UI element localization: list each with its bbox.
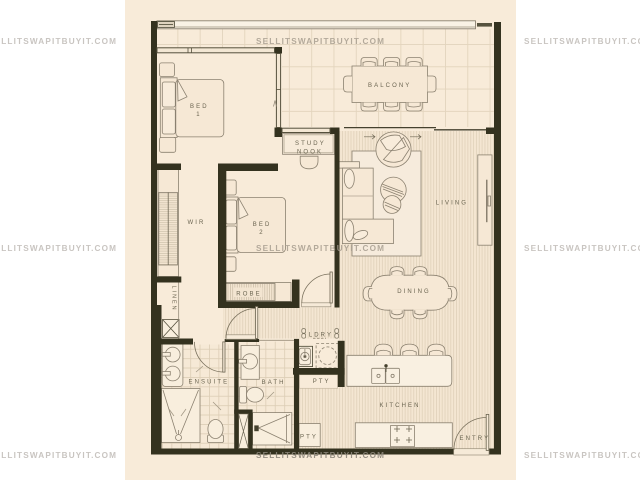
svg-text:SELLITSWAPITBUYIT.COM: SELLITSWAPITBUYIT.COM <box>524 37 640 46</box>
svg-text:BALCONY: BALCONY <box>368 83 411 89</box>
svg-text:BED: BED <box>190 104 209 110</box>
svg-text:PTY: PTY <box>300 434 318 440</box>
svg-text:LDRY: LDRY <box>309 333 333 339</box>
svg-text:ENSUITE: ENSUITE <box>189 380 230 386</box>
svg-text:SELLITSWAPITBUYIT.COM: SELLITSWAPITBUYIT.COM <box>256 451 384 460</box>
svg-text:SELLITSWAPITBUYIT.COM: SELLITSWAPITBUYIT.COM <box>0 37 116 46</box>
svg-text:SELLITSWAPITBUYIT.COM: SELLITSWAPITBUYIT.COM <box>524 451 640 460</box>
svg-text:WIR: WIR <box>188 220 206 226</box>
svg-text:SELLITSWAPITBUYIT.COM: SELLITSWAPITBUYIT.COM <box>256 37 384 46</box>
svg-text:KITCHEN: KITCHEN <box>380 403 421 409</box>
svg-text:PTY: PTY <box>313 379 331 385</box>
svg-text:DINING: DINING <box>397 289 431 295</box>
svg-text:NOOK: NOOK <box>297 149 323 155</box>
svg-text:1: 1 <box>196 112 201 118</box>
svg-text:BED: BED <box>253 222 272 228</box>
svg-text:SELLITSWAPITBUYIT.COM: SELLITSWAPITBUYIT.COM <box>256 244 384 253</box>
svg-text:STUDY: STUDY <box>295 141 326 147</box>
svg-text:LIVING: LIVING <box>436 200 468 206</box>
svg-text:LINEN: LINEN <box>171 286 177 312</box>
svg-text:SELLITSWAPITBUYIT.COM: SELLITSWAPITBUYIT.COM <box>0 451 116 460</box>
svg-text:BATH: BATH <box>262 380 286 386</box>
svg-text:ROBE: ROBE <box>236 292 261 298</box>
svg-text:SELLITSWAPITBUYIT.COM: SELLITSWAPITBUYIT.COM <box>524 244 640 253</box>
svg-text:ENTRY: ENTRY <box>460 436 491 442</box>
svg-text:2: 2 <box>259 230 264 236</box>
svg-text:SELLITSWAPITBUYIT.COM: SELLITSWAPITBUYIT.COM <box>0 244 116 253</box>
